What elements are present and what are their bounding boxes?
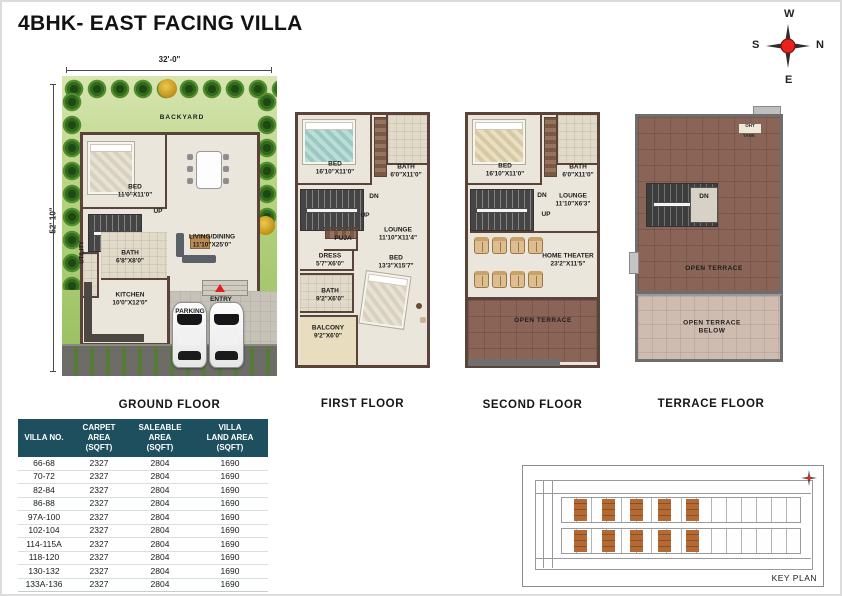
chair-icon bbox=[223, 154, 229, 160]
ground-floor-caption: GROUND FLOOR bbox=[62, 399, 277, 411]
highlighted-villa-plot bbox=[602, 530, 615, 552]
living-dining-label: LIVING/DINING 11'10"X25'0" bbox=[189, 234, 235, 251]
chair-icon bbox=[187, 154, 193, 160]
compass-north-label: N bbox=[816, 39, 824, 51]
dining-table-icon bbox=[196, 151, 222, 189]
terrace-floor-caption: TERRACE FLOOR bbox=[635, 398, 787, 410]
bed-icon bbox=[358, 270, 411, 330]
highlighted-villa-plot bbox=[574, 499, 587, 521]
entry-arrow-icon bbox=[215, 284, 225, 292]
compass-rose-icon bbox=[764, 22, 812, 70]
sofa-icon bbox=[176, 233, 184, 257]
lounge-first-label: LOUNGE 11'10"X11'4" bbox=[379, 227, 417, 244]
terrace-step bbox=[468, 359, 560, 366]
key-plan-compass-icon bbox=[801, 470, 817, 486]
highlighted-villa-plot bbox=[630, 499, 643, 521]
theater-seat-icon bbox=[510, 271, 525, 288]
staircase bbox=[470, 189, 534, 231]
entry-steps bbox=[202, 280, 248, 296]
villa-area-table: VILLA NO. CARPET AREA (SQFT) SALEABLE AR… bbox=[18, 419, 268, 592]
dimension-tick bbox=[66, 67, 67, 73]
highlighted-villa-plot bbox=[630, 530, 643, 552]
highlighted-villa-plot bbox=[658, 530, 671, 552]
lounge-second-label: LOUNGE 11'10"X6'3" bbox=[556, 193, 591, 210]
kitchen-counter-icon bbox=[84, 334, 144, 342]
plot-band bbox=[561, 497, 801, 523]
open-terrace-below: OPEN TERRACE BELOW bbox=[635, 294, 783, 362]
compass: W S N E bbox=[748, 6, 828, 90]
page-title: 4BHK- EAST FACING VILLA bbox=[18, 12, 303, 36]
dn-label-first: DN bbox=[369, 193, 378, 201]
utility-label: UTILITY bbox=[79, 241, 87, 264]
second-floor-caption: SECOND FLOOR bbox=[465, 399, 600, 411]
table-row: 70-72232728041690 bbox=[18, 470, 268, 484]
col-saleable-area: SALEABLE AREA (SQFT) bbox=[128, 419, 192, 457]
kitchen-counter-icon bbox=[84, 282, 92, 342]
bed-icon bbox=[302, 119, 356, 165]
first-floor-plan: BED 16'10"X11'0" BATH 6'0"X11'0" DN UP P… bbox=[295, 112, 430, 368]
bedroom2-first-label: BED 13'3"X15'7" bbox=[378, 255, 413, 272]
second-floor-plan: BED 16'10"X11'0" BATH 6'0"X11'0" DN UP L… bbox=[465, 112, 600, 368]
up-label-ground: UP bbox=[153, 208, 162, 216]
chair-icon bbox=[223, 166, 229, 172]
plot-band bbox=[561, 528, 801, 554]
yellow-tree-icon bbox=[158, 79, 177, 98]
highlighted-villa-plot bbox=[686, 499, 699, 521]
balcony-label: BALCONY 9'2"X6'0" bbox=[312, 325, 344, 342]
dn-label-second: DN bbox=[537, 192, 546, 200]
table-row: 86-88232728041690 bbox=[18, 497, 268, 511]
theater-seat-icon bbox=[528, 237, 543, 254]
terrace-floor-plan: OHT TANK DN OPEN TERRACE OPEN TERRACE BE… bbox=[635, 106, 787, 372]
theater-seat-icon bbox=[510, 237, 525, 254]
chair-icon bbox=[420, 317, 426, 323]
parking-label: PARKING bbox=[175, 308, 205, 316]
compass-east-label: E bbox=[785, 74, 792, 86]
open-terrace: OHT TANK DN OPEN TERRACE bbox=[635, 114, 783, 294]
chair-icon bbox=[187, 166, 193, 172]
up-label-second: UP bbox=[541, 211, 550, 219]
dimension-line-horizontal bbox=[66, 70, 272, 71]
backyard-label: BACKYARD bbox=[160, 114, 205, 122]
bathroom2-first-label: BATH 9'2"X6'0" bbox=[316, 288, 344, 305]
open-terrace-second-label: OPEN TERRACE bbox=[514, 317, 572, 325]
open-terrace-second bbox=[468, 297, 597, 362]
table-row: 82-84232728041690 bbox=[18, 484, 268, 498]
table-row: 133A-136232728041690 bbox=[18, 578, 268, 592]
bedroom1-first-label: BED 16'10"X11'0" bbox=[316, 161, 355, 178]
compass-west-label: W bbox=[784, 8, 794, 20]
highlighted-villa-plot bbox=[602, 499, 615, 521]
entry-label: ENTRY bbox=[210, 296, 232, 304]
oht-label: OHT bbox=[739, 124, 761, 129]
theater-seat-icon bbox=[474, 237, 489, 254]
service-box bbox=[629, 252, 639, 274]
up-label-first: UP bbox=[360, 212, 369, 220]
road-line bbox=[535, 558, 811, 559]
table-icon bbox=[416, 303, 422, 309]
dn-label-terrace: DN bbox=[699, 193, 708, 201]
home-theater-label: HOME THEATER 23'2"X11'5" bbox=[542, 253, 594, 270]
bathroom-ground-label: BATH 6'8"X8'0" bbox=[116, 250, 144, 267]
bedroom-second-label: BED 16'10"X11'0" bbox=[486, 163, 525, 180]
compass-south-label: S bbox=[752, 39, 759, 51]
highlighted-villa-plot bbox=[686, 530, 699, 552]
open-terrace-below-label: OPEN TERRACE BELOW bbox=[683, 320, 741, 337]
theater-seat-icon bbox=[474, 271, 489, 288]
table-row: 130-132232728041690 bbox=[18, 565, 268, 579]
table-row: 114-115A232728041690 bbox=[18, 538, 268, 552]
sofa-icon bbox=[182, 255, 216, 263]
first-floor-caption: FIRST FLOOR bbox=[295, 398, 430, 410]
table-header-row: VILLA NO. CARPET AREA (SQFT) SALEABLE AR… bbox=[18, 419, 268, 457]
dress-label: DRESS 5'7"X6'0" bbox=[316, 253, 344, 270]
dimension-tick bbox=[271, 67, 272, 73]
car-icon bbox=[209, 302, 244, 368]
puja-label: PUJA bbox=[334, 235, 351, 243]
key-plan-label: KEY PLAN bbox=[772, 573, 817, 583]
bathroom1-first-label: BATH 6'0"X11'0" bbox=[390, 164, 421, 181]
road-strip bbox=[62, 344, 277, 376]
table-row: 97A-100232728041690 bbox=[18, 511, 268, 525]
living-dining-room bbox=[170, 135, 257, 291]
staircase bbox=[300, 189, 364, 231]
bathroom-second bbox=[556, 115, 597, 165]
theater-seat-icon bbox=[492, 237, 507, 254]
brochure-page: 4BHK- EAST FACING VILLA W S N E 32'-0" 5… bbox=[0, 0, 842, 596]
col-carpet-area: CARPET AREA (SQFT) bbox=[70, 419, 128, 457]
road-line bbox=[535, 493, 811, 494]
bathroom1-first bbox=[386, 115, 427, 165]
table-row: 102-104232728041690 bbox=[18, 524, 268, 538]
bed-icon bbox=[472, 119, 526, 165]
bathroom-second-label: BATH 6'0"X11'0" bbox=[562, 164, 593, 181]
dimension-tick bbox=[50, 371, 56, 372]
kitchen-label: KITCHEN 10'0"X12'0" bbox=[112, 292, 147, 309]
dimension-tick bbox=[50, 84, 56, 85]
open-terrace-label: OPEN TERRACE bbox=[685, 265, 743, 273]
chair-icon bbox=[187, 178, 193, 184]
highlighted-villa-plot bbox=[658, 499, 671, 521]
table-row: 118-120232728041690 bbox=[18, 551, 268, 565]
plot-width-dimension: 32'-0" bbox=[62, 55, 277, 64]
ground-floor-plan: BACKYARD BED 11'0"X11'0" LIVING/DINING bbox=[62, 76, 277, 374]
bedroom-ground-label: BED 11'0"X11'0" bbox=[118, 184, 153, 201]
table-row: 66-68232728041690 bbox=[18, 457, 268, 470]
dimension-line-vertical bbox=[53, 84, 54, 372]
col-villa-no: VILLA NO. bbox=[18, 419, 70, 457]
highlighted-villa-plot bbox=[574, 530, 587, 552]
theater-seat-icon bbox=[492, 271, 507, 288]
key-plan: KEY PLAN bbox=[522, 465, 824, 587]
col-villa-land-area: VILLA LAND AREA (SQFT) bbox=[192, 419, 268, 457]
tank-label: TANK bbox=[738, 134, 760, 139]
theater-seat-icon bbox=[528, 271, 543, 288]
chair-icon bbox=[223, 178, 229, 184]
